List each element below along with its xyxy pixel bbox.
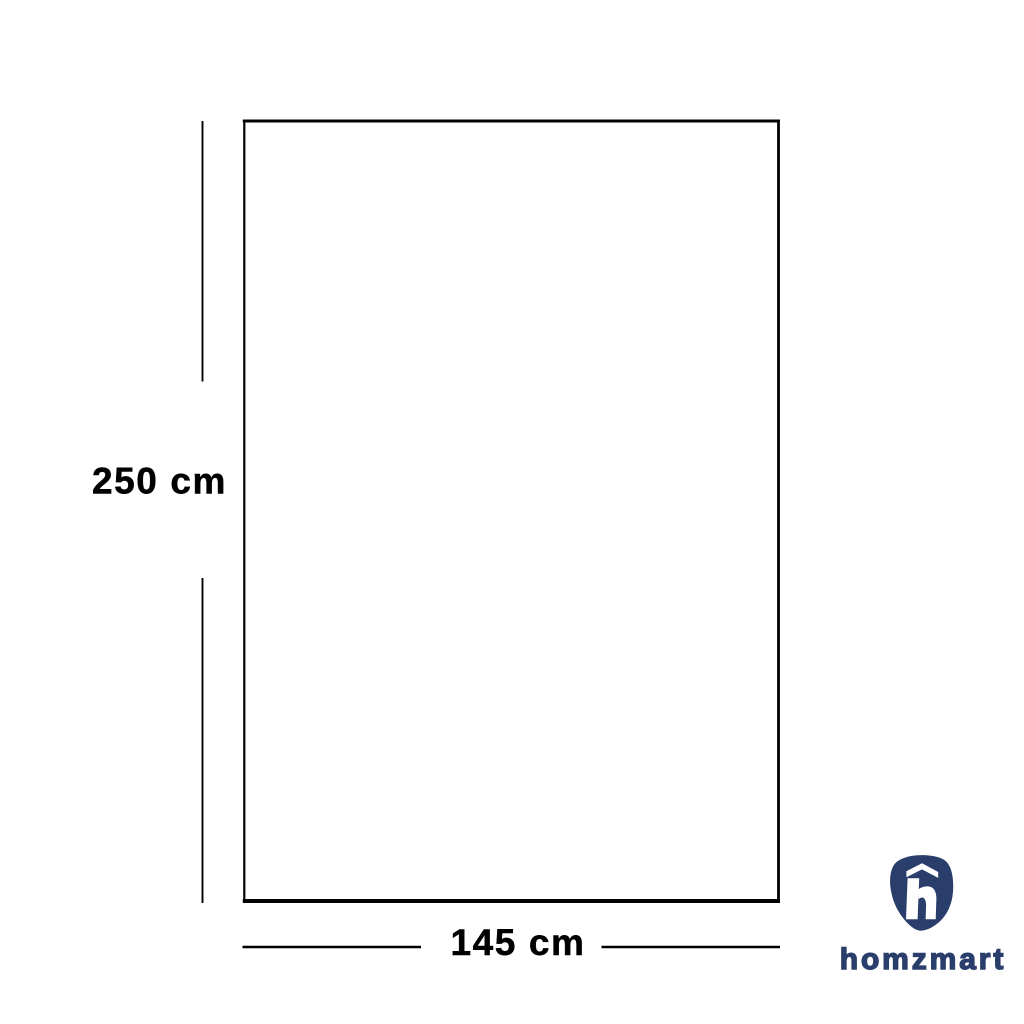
svg-text:homzmart: homzmart — [840, 943, 1007, 976]
svg-text:145 cm: 145 cm — [450, 922, 585, 963]
svg-text:250 cm: 250 cm — [92, 461, 227, 502]
